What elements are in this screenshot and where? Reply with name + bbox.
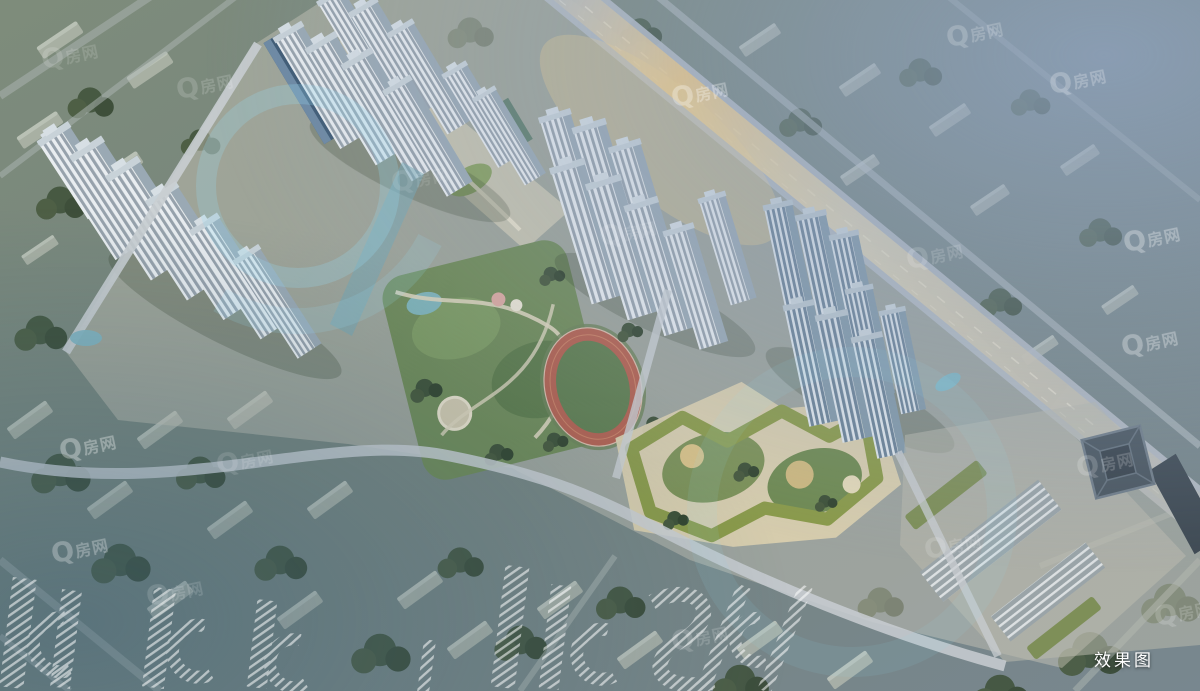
aerial-scene — [0, 0, 1200, 691]
rendering-type-label: 效果图 — [1094, 646, 1154, 671]
rendering-canvas: Q房网Q房网Q房网Q房网Q房网Q房网Q房网Q房网Q房网Q房网Q房网Q房网Q房网Q… — [0, 0, 1200, 691]
haze-bottom-left — [0, 0, 1200, 691]
